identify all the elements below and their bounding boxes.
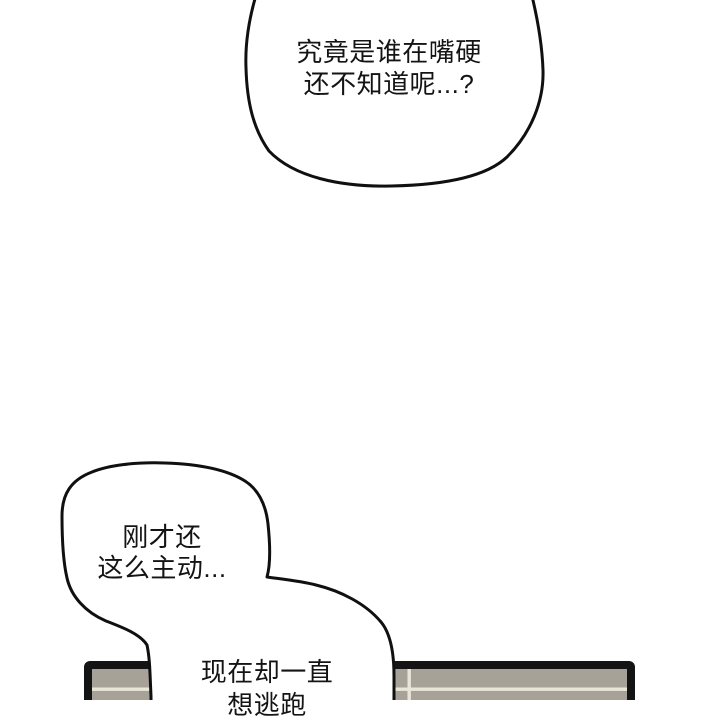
comic-panel: 究竟是谁在嘴硬 还不知道呢...? 刚才还 这么主动... 现在却一直 想逃跑 — [0, 0, 720, 700]
bottom-speech-bubble-text: 现在却一直 想逃跑 — [137, 656, 397, 722]
table-seam-vertical — [408, 669, 411, 700]
middle-speech-bubble-text: 刚才还 这么主动... — [42, 522, 282, 584]
speech-line: 究竟是谁在嘴硬 — [229, 36, 549, 68]
speech-line: 还不知道呢...? — [229, 68, 549, 100]
speech-line: 现在却一直 — [137, 656, 397, 689]
speech-line: 想逃跑 — [137, 689, 397, 722]
top-speech-bubble-text: 究竟是谁在嘴硬 还不知道呢...? — [229, 36, 549, 100]
speech-line: 这么主动... — [42, 553, 282, 584]
speech-line: 刚才还 — [42, 522, 282, 553]
panel-artwork — [0, 0, 720, 700]
